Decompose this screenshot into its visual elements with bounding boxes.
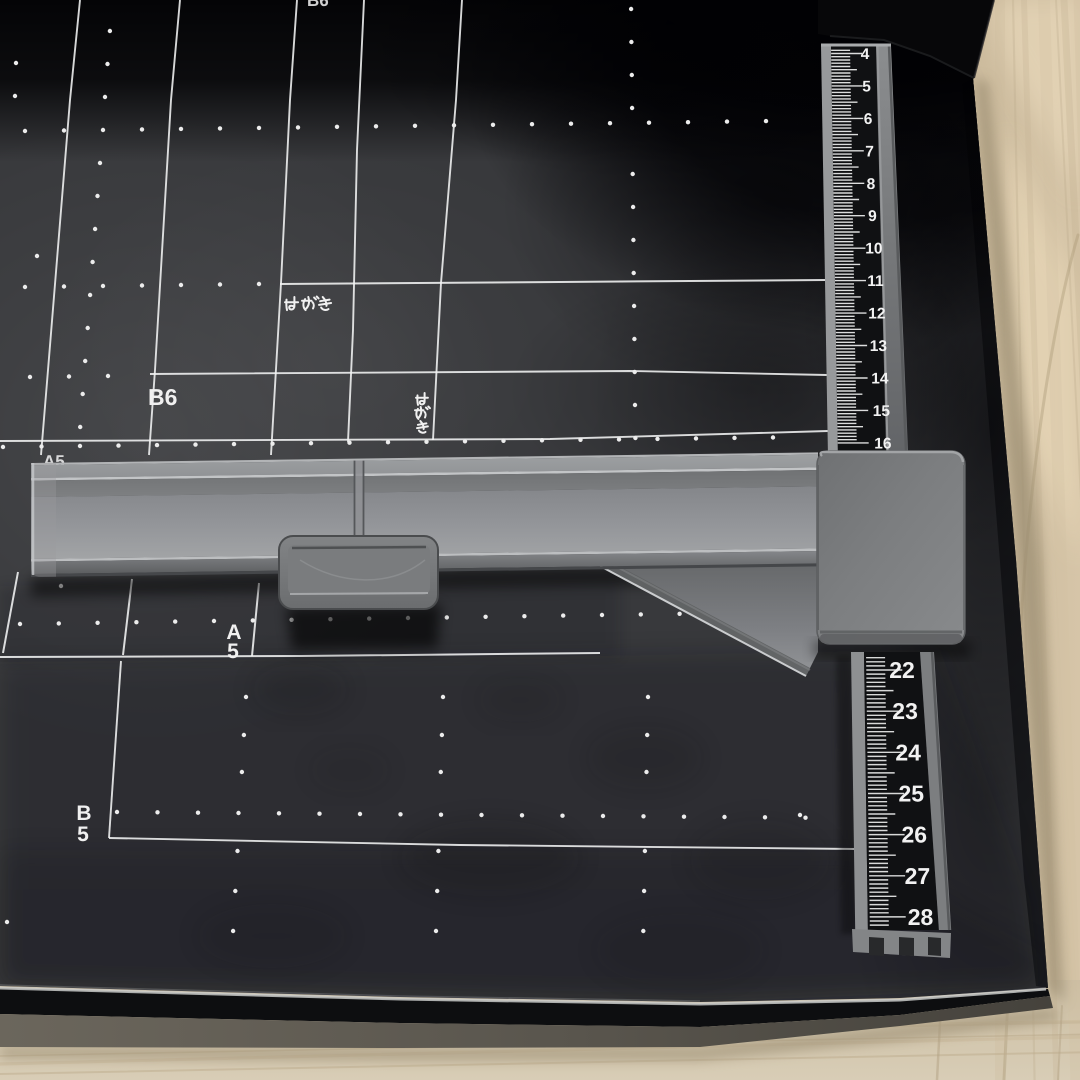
svg-text:5: 5 — [77, 823, 89, 846]
svg-text:12: 12 — [868, 306, 885, 323]
svg-text:5: 5 — [862, 79, 871, 96]
svg-text:28: 28 — [908, 904, 934, 930]
svg-text:7: 7 — [865, 143, 874, 160]
svg-text:6: 6 — [864, 111, 873, 128]
svg-text:26: 26 — [902, 822, 928, 848]
svg-text:11: 11 — [867, 273, 884, 290]
svg-text:8: 8 — [867, 176, 876, 193]
svg-text:9: 9 — [868, 208, 877, 225]
svg-text:27: 27 — [905, 863, 931, 889]
svg-text:16: 16 — [874, 435, 892, 452]
svg-text:B: B — [76, 802, 91, 825]
svg-text:22: 22 — [889, 657, 915, 683]
svg-text:10: 10 — [865, 241, 882, 258]
svg-text:23: 23 — [892, 698, 918, 724]
svg-text:13: 13 — [870, 338, 888, 355]
svg-text:B6: B6 — [307, 0, 329, 10]
svg-text:5: 5 — [227, 640, 239, 663]
svg-text:15: 15 — [873, 403, 891, 420]
svg-text:4: 4 — [861, 46, 870, 63]
svg-text:25: 25 — [899, 781, 925, 807]
svg-text:B6: B6 — [148, 384, 177, 410]
svg-text:14: 14 — [871, 371, 889, 388]
svg-text:24: 24 — [895, 739, 921, 765]
